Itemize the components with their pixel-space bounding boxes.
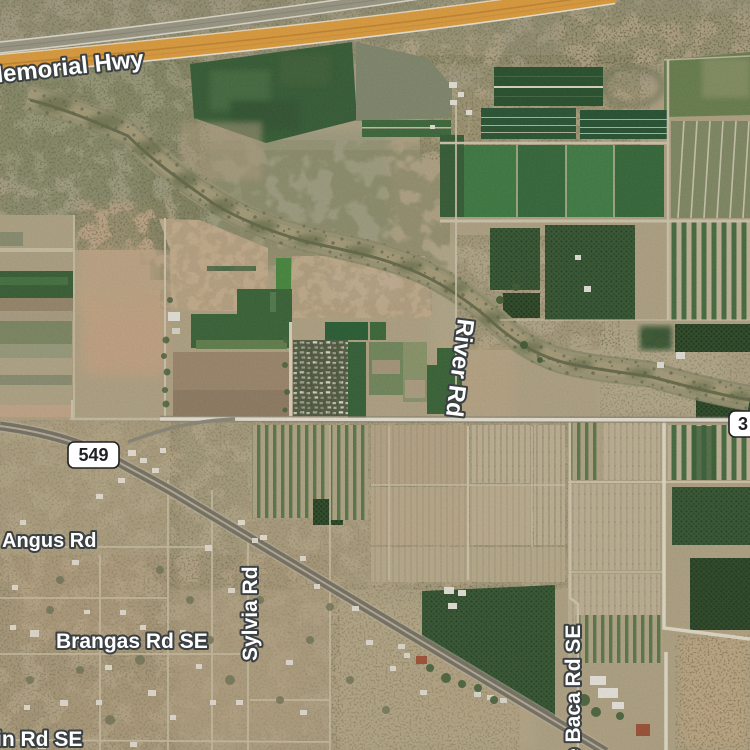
svg-text:Angus Rd: Angus Rd	[2, 530, 96, 552]
svg-text:e Baca Rd SE: e Baca Rd SE	[562, 625, 585, 750]
svg-text:Sylvia Rd: Sylvia Rd	[239, 566, 262, 661]
svg-text:3: 3	[738, 414, 748, 434]
svg-text:in Rd SE: in Rd SE	[0, 728, 82, 750]
svg-text:549: 549	[78, 445, 108, 465]
svg-text:Brangas Rd SE: Brangas Rd SE	[56, 630, 208, 653]
